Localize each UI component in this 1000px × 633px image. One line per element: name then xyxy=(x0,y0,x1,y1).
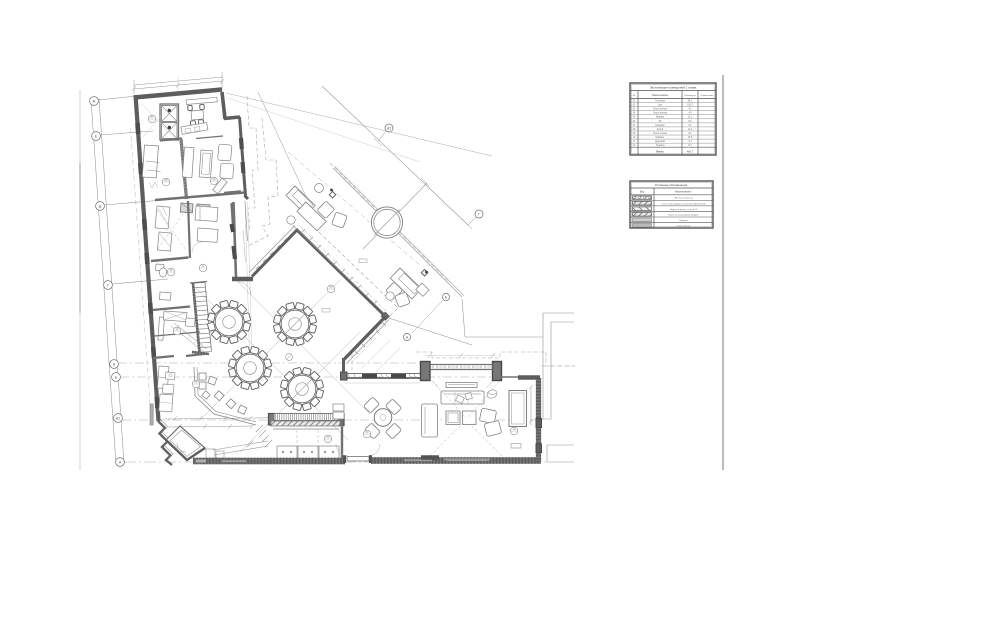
svg-text:Стены и перегородки из пенобло: Стены и перегородки из пеноблоков кирпич… xyxy=(661,203,705,205)
svg-text:Условные обозначения: Условные обозначения xyxy=(655,183,688,187)
svg-text:Душевой: Душевой xyxy=(655,140,665,143)
svg-text:Лестн.клетка: Лестн.клетка xyxy=(653,109,668,111)
svg-text:Наименование: Наименование xyxy=(652,94,669,97)
svg-text:Стойки опорные: Стойки опорные xyxy=(676,224,690,227)
svg-text:А1: А1 xyxy=(116,416,120,420)
svg-text:12.1: 12.1 xyxy=(688,117,693,119)
svg-text:Лестн.клетка: Лестн.клетка xyxy=(653,113,668,115)
svg-text:Г: Г xyxy=(478,212,480,216)
svg-text:Кабинет: Кабинет xyxy=(656,137,666,139)
svg-text:15.8: 15.8 xyxy=(688,137,693,139)
svg-text:Барная: Барная xyxy=(656,117,665,119)
svg-text:Наименование: Наименование xyxy=(675,190,692,193)
svg-text:Наружный фасад, стены из ГБ: Наружный фасад, стены из ГБ xyxy=(670,208,698,211)
svg-text:Итого: Итого xyxy=(656,149,664,153)
svg-text:11.2: 11.2 xyxy=(688,129,693,131)
svg-text:Примечание: Примечание xyxy=(701,95,714,97)
svg-text:Терраса: Терраса xyxy=(656,145,666,147)
svg-text:Кухня: Кухня xyxy=(657,129,664,131)
svg-text:Г: Г xyxy=(107,283,109,287)
svg-text:156.2: 156.2 xyxy=(687,105,693,107)
svg-text:Лестн.клетка: Лестн.клетка xyxy=(653,133,668,135)
svg-text:Коридор: Коридор xyxy=(655,125,665,127)
svg-text:Каркас из алюминиевого профиля: Каркас из алюминиевого профиля xyxy=(668,213,698,216)
svg-text:Экспликация помещений 1 этажа: Экспликация помещений 1 этажа xyxy=(650,85,697,89)
svg-text:Вид: Вид xyxy=(640,190,645,193)
svg-text:Площадь м: Площадь м xyxy=(684,95,696,97)
svg-text:486.7: 486.7 xyxy=(687,150,694,153)
svg-text:ЖБ стены и колонны: ЖБ стены и колонны xyxy=(674,198,693,200)
svg-text:Гостиная: Гостиная xyxy=(655,100,665,102)
svg-text:Изоляция: Изоляция xyxy=(679,220,688,222)
svg-text:38.1: 38.1 xyxy=(688,100,693,102)
svg-text:Зал: Зал xyxy=(658,105,663,107)
svg-text:А1: А1 xyxy=(387,126,391,130)
svg-text:№: № xyxy=(633,94,636,97)
